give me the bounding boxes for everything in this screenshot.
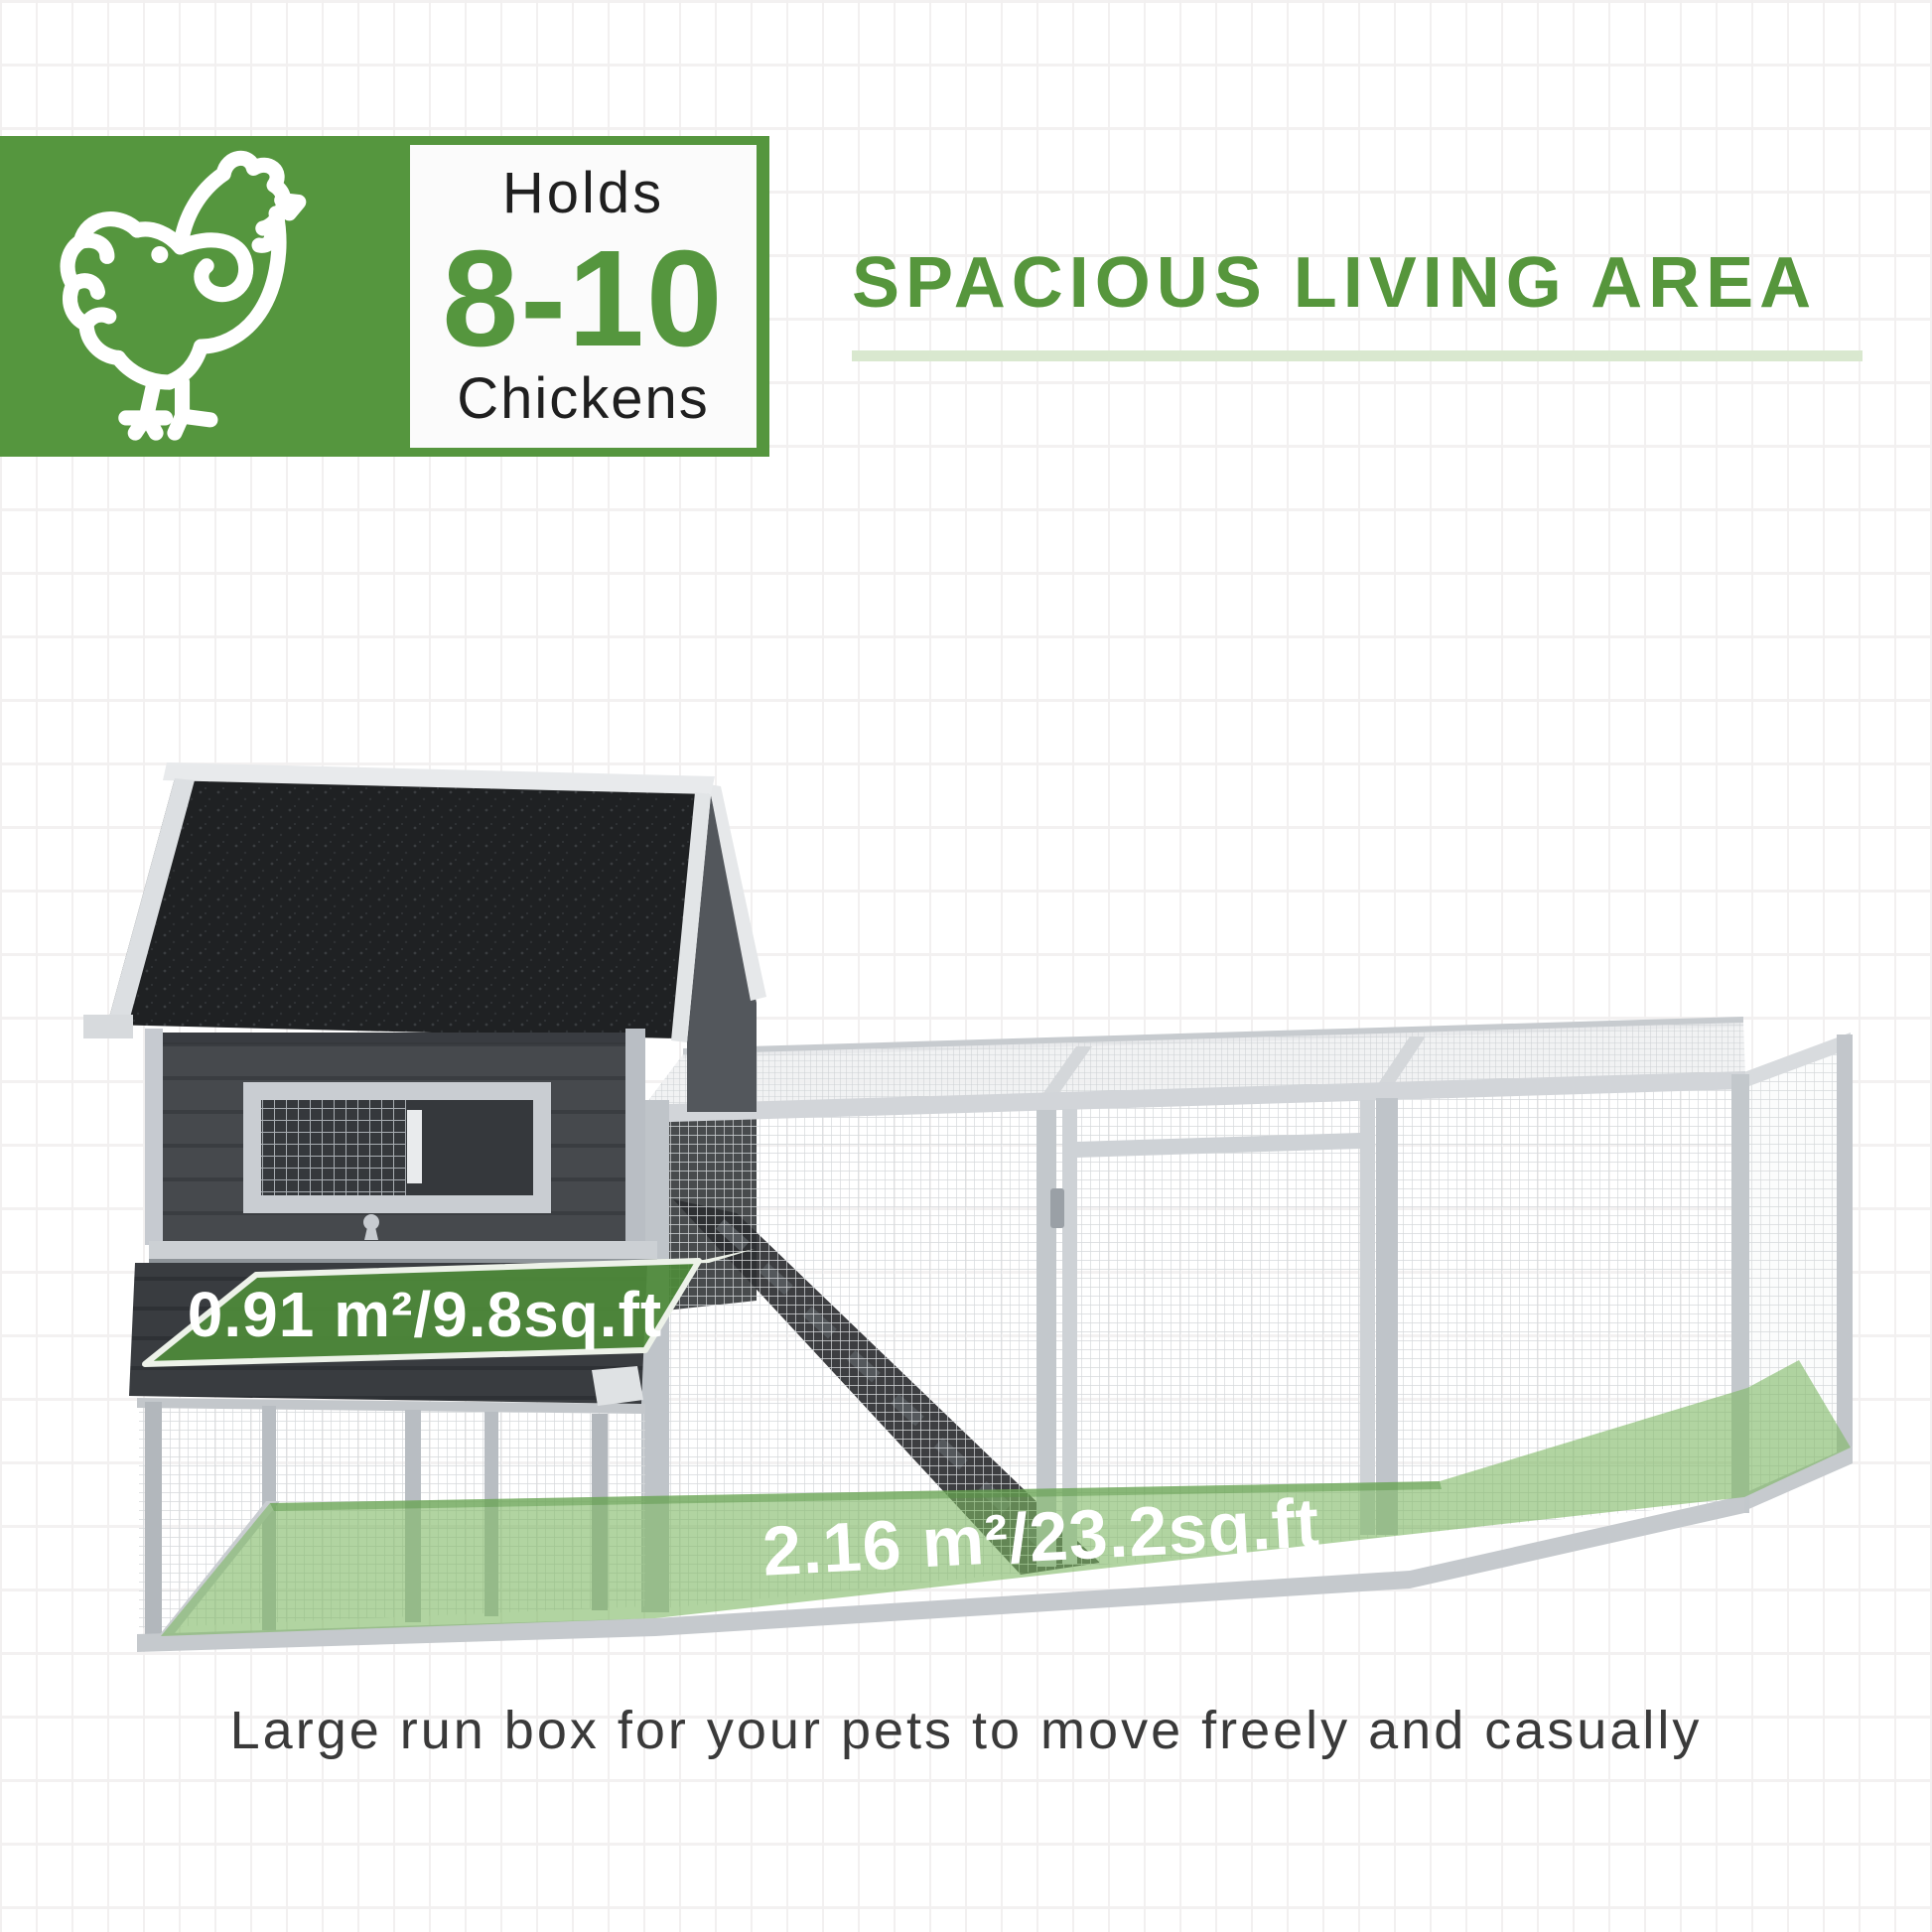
infographic-page: Holds 8-10 Chickens SPACIOUS LIVING AREA [0, 0, 1932, 1932]
leg [145, 1402, 162, 1642]
eave-block [83, 1015, 133, 1038]
mid-rail [149, 1241, 657, 1261]
coop-area-label: 0.91 m²/9.8sq.ft [188, 1279, 662, 1350]
corner-trim-left [145, 1029, 163, 1245]
run-end-post [1837, 1035, 1853, 1461]
caption-text: Large run box for your pets to move free… [0, 1700, 1932, 1761]
chicken-coop-illustration: 2.16 m²/23.2sq.ft 0.91 m²/9.8sq.ft [0, 0, 1932, 1932]
eave-shadow [157, 1033, 635, 1044]
run-post [1376, 1098, 1398, 1535]
nest-lid-trim [592, 1366, 643, 1406]
door-handle [1050, 1188, 1064, 1228]
keyhole-latch [363, 1214, 379, 1240]
roof-front-slope [107, 778, 709, 1038]
window-handle [407, 1110, 422, 1183]
house-window [243, 1082, 551, 1213]
corner-trim-right [625, 1029, 645, 1245]
door-stile-right [1360, 1100, 1375, 1535]
